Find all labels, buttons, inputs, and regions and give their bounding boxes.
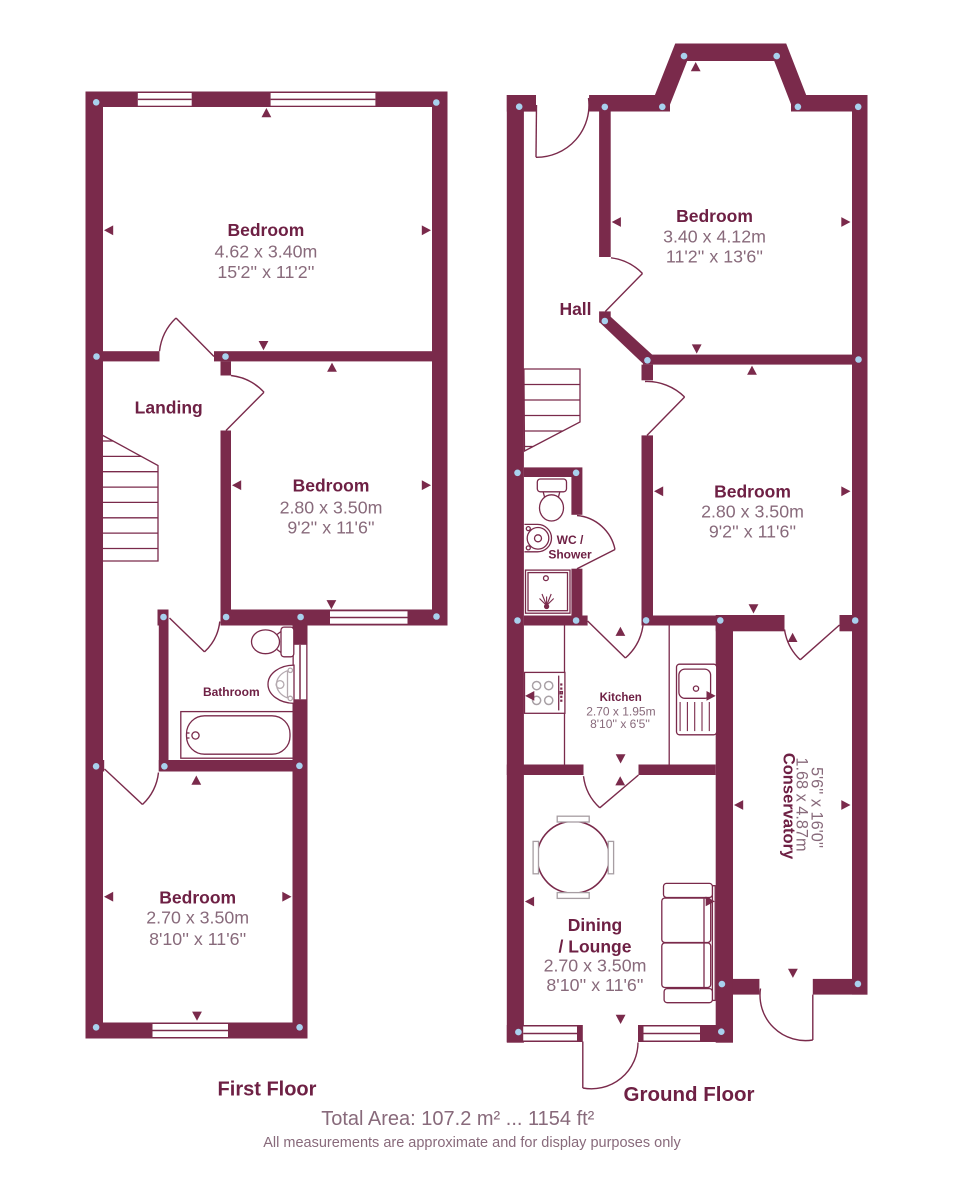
svg-text:WC /: WC /	[557, 533, 584, 547]
svg-text:Bedroom: Bedroom	[293, 476, 370, 496]
svg-text:Bedroom: Bedroom	[159, 888, 236, 908]
svg-text:4.62 x 3.40m: 4.62 x 3.40m	[214, 242, 317, 262]
svg-text:3.40 x 4.12m: 3.40 x 4.12m	[663, 227, 766, 247]
svg-text:11'2'' x 13'6'': 11'2'' x 13'6''	[666, 247, 763, 267]
svg-text:/ Lounge: / Lounge	[559, 937, 632, 957]
svg-text:Bedroom: Bedroom	[714, 482, 791, 502]
svg-text:2.70 x 3.50m: 2.70 x 3.50m	[544, 956, 647, 976]
svg-text:8'10'' x 6'5'': 8'10'' x 6'5''	[590, 717, 650, 731]
svg-text:Total Area: 107.2 m² ... 1154: Total Area: 107.2 m² ... 1154 ft²	[321, 1108, 594, 1130]
svg-text:2.80 x 3.50m: 2.80 x 3.50m	[701, 502, 804, 522]
svg-text:2.80 x 3.50m: 2.80 x 3.50m	[280, 498, 383, 518]
svg-text:15'2'' x 11'2'': 15'2'' x 11'2''	[217, 262, 314, 282]
svg-text:5'6'' x 16'0'': 5'6'' x 16'0''	[808, 767, 826, 848]
svg-text:8'10'' x 11'6'': 8'10'' x 11'6''	[546, 975, 643, 995]
svg-text:Bathroom: Bathroom	[203, 685, 260, 699]
svg-text:2.70 x 3.50m: 2.70 x 3.50m	[146, 908, 249, 928]
svg-text:Hall: Hall	[559, 299, 591, 319]
svg-text:Landing: Landing	[135, 398, 203, 418]
svg-text:Ground Floor: Ground Floor	[624, 1083, 755, 1106]
svg-text:Kitchen: Kitchen	[600, 692, 642, 704]
svg-text:Bedroom: Bedroom	[227, 220, 304, 240]
svg-text:9'2'' x 11'6'': 9'2'' x 11'6''	[709, 522, 796, 542]
svg-text:First Floor: First Floor	[218, 1079, 317, 1101]
svg-text:Bedroom: Bedroom	[676, 206, 753, 226]
svg-text:All measurements are approxima: All measurements are approximate and for…	[263, 1135, 681, 1151]
svg-text:8'10'' x 11'6'': 8'10'' x 11'6''	[149, 929, 246, 949]
svg-text:Shower: Shower	[548, 548, 592, 562]
svg-text:9'2'' x 11'6'': 9'2'' x 11'6''	[287, 518, 374, 538]
svg-text:Dining: Dining	[568, 915, 622, 935]
